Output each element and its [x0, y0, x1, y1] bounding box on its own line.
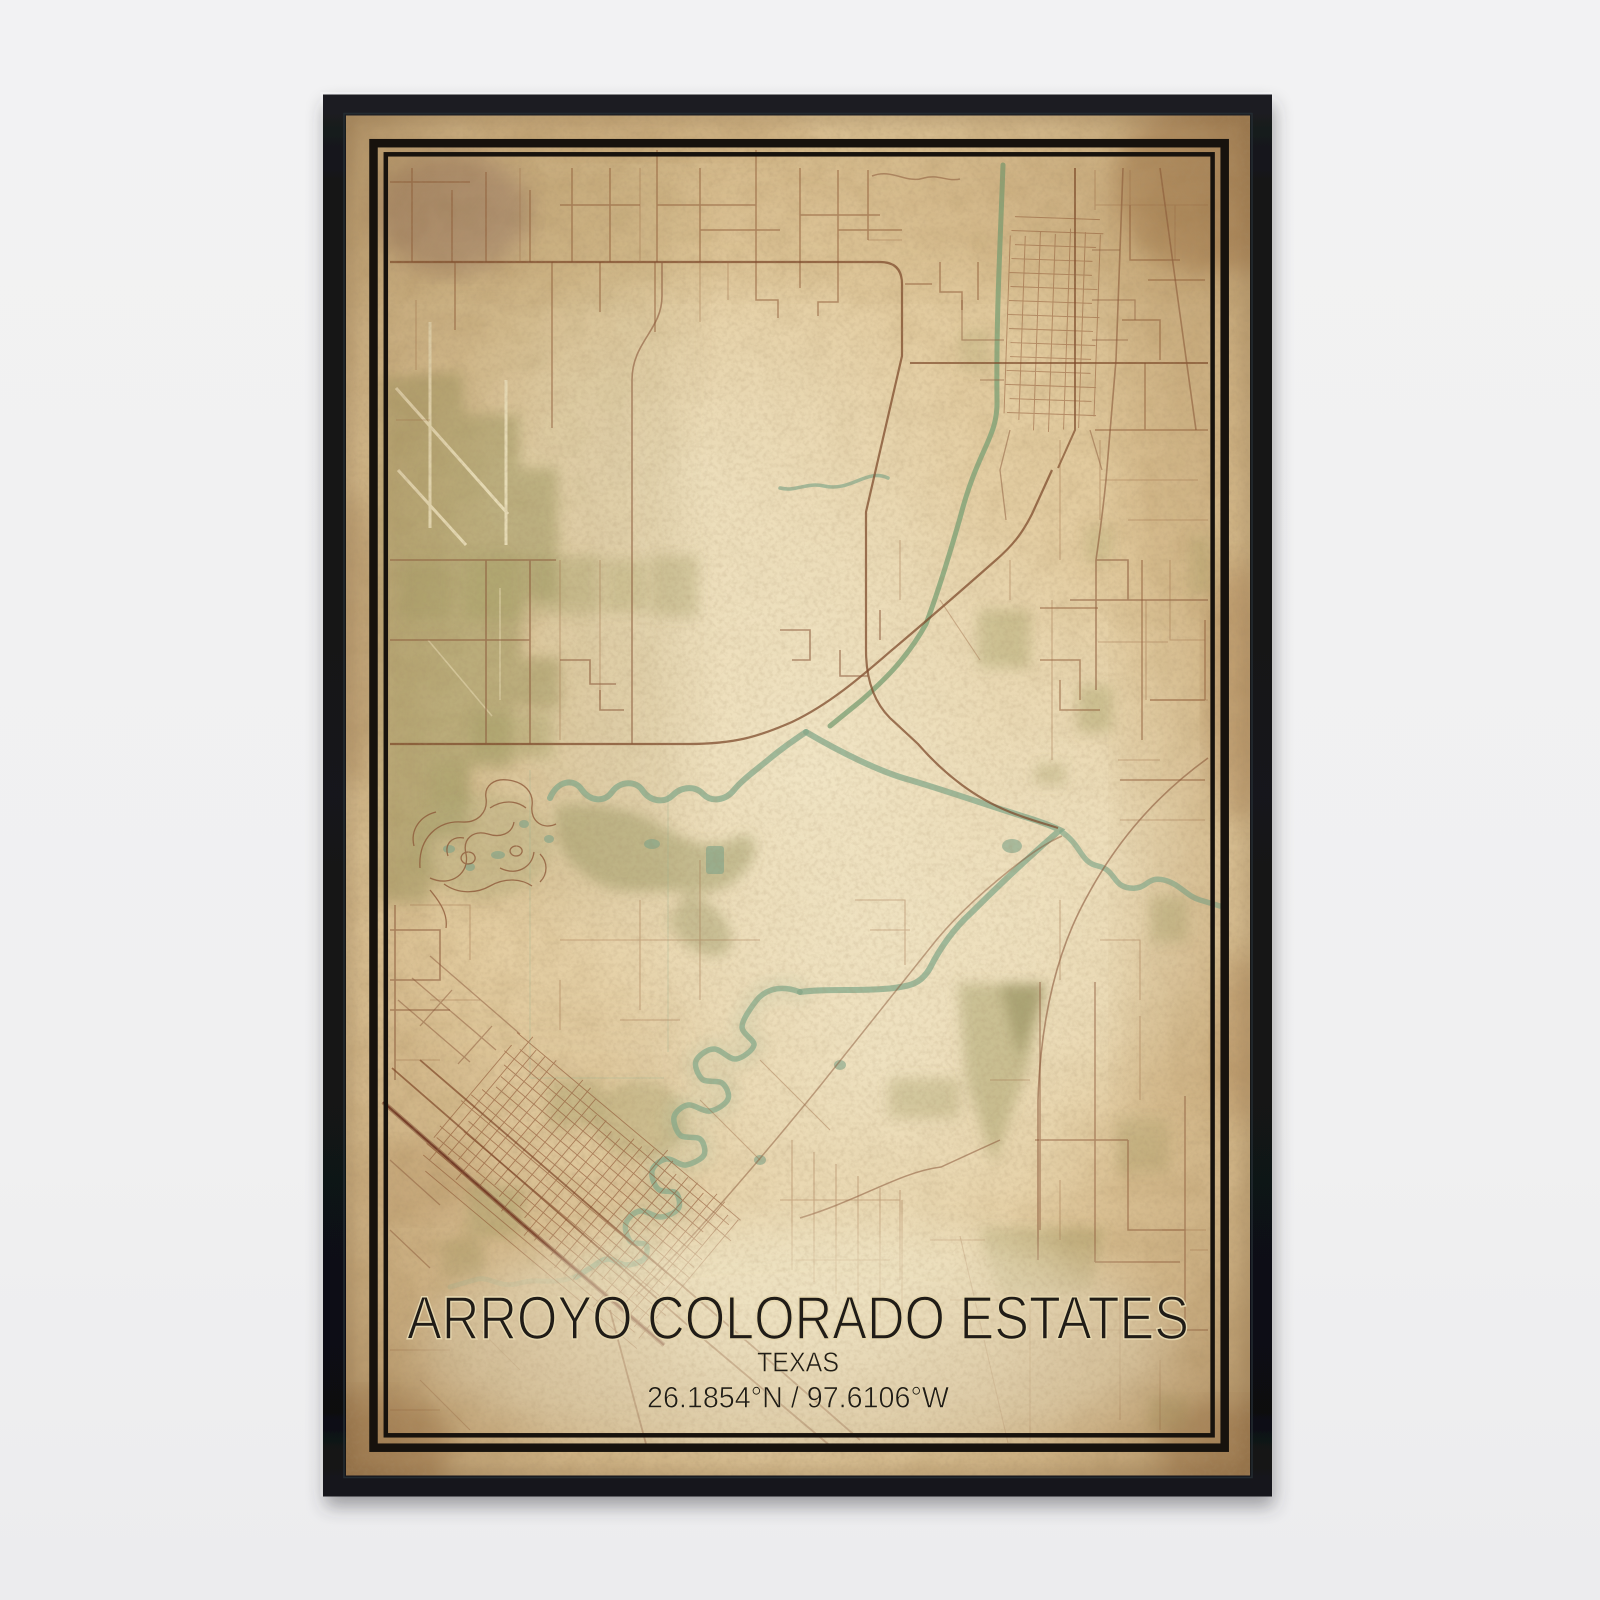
- svg-text:TEXAS: TEXAS: [757, 1347, 839, 1378]
- svg-text:ARROYO COLORADO ESTATES: ARROYO COLORADO ESTATES: [407, 1284, 1189, 1352]
- svg-text:26.1854°N / 97.6106°W: 26.1854°N / 97.6106°W: [647, 1382, 950, 1415]
